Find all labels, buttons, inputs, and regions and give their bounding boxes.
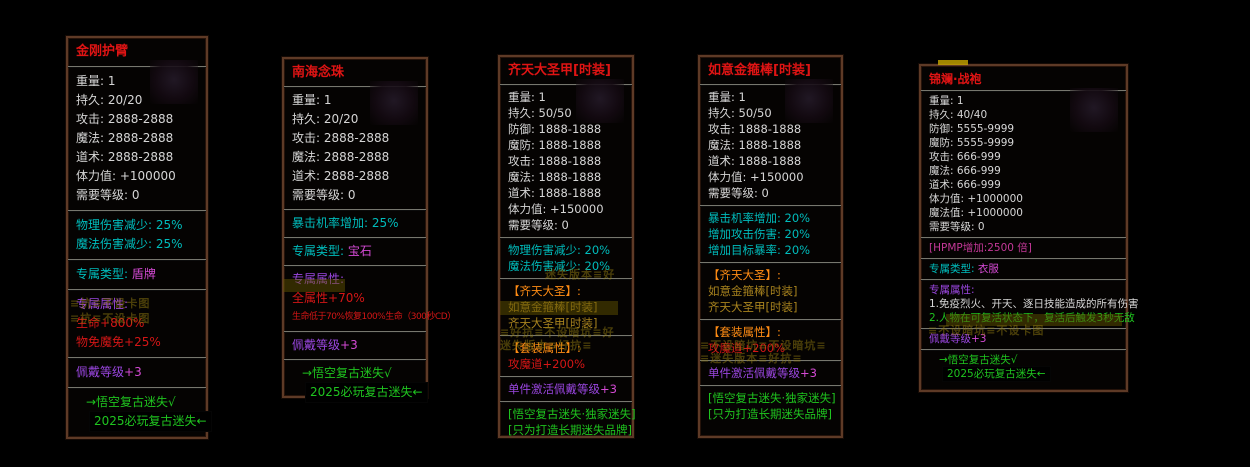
exclusive-type-line: 专属类型: 宝石 — [292, 242, 418, 261]
stats-line: 体力值: +150000 — [708, 169, 833, 185]
stats-line: 魔法值: +1000000 — [929, 206, 1118, 220]
bonuses-line: 物理伤害减少: 20% — [508, 242, 624, 258]
stats-line: 魔法: 1888-1888 — [508, 169, 624, 185]
exclusive-attrs-line: 专属属性: — [929, 283, 1118, 297]
bonuses-section: 物理伤害减少: 25%魔法伤害减少: 25% — [76, 216, 198, 254]
item-tooltip-nanhai-nianzhu: 南海念珠重量: 1持久: 20/20攻击: 2888-2888魔法: 2888-… — [282, 57, 428, 398]
footer-section: →悟空复古迷失√2025必玩复古迷失← — [292, 364, 418, 402]
item-title: 齐天大圣甲[时装] — [508, 62, 624, 80]
stats-line: 重量: 1 — [929, 94, 1118, 108]
text-segment: 持久: 20/20 — [76, 93, 142, 107]
section-divider — [500, 335, 632, 336]
text-segment: 单件激活佩戴等级 — [508, 382, 600, 396]
text-segment: 佩戴等级 — [76, 365, 124, 379]
text-segment: 重量: 1 — [708, 90, 746, 104]
text-segment: 南海念珠 — [292, 65, 344, 80]
section-divider — [921, 349, 1126, 350]
text-segment: 2025必玩复古迷失← — [947, 368, 1046, 380]
stats-section: 重量: 1持久: 50/50防御: 1888-1888魔防: 1888-1888… — [508, 89, 624, 233]
highlight-badge: 2025必玩复古迷失← — [943, 367, 1050, 381]
text-segment: 衣服 — [978, 263, 999, 275]
stats-line: 重量: 1 — [508, 89, 624, 105]
section-divider — [921, 328, 1126, 329]
text-segment: 魔法值: +1000000 — [929, 207, 1023, 219]
exclusive-attrs-line: 全属性+70% — [292, 289, 418, 308]
exclusive-type-section: 专属类型: 盾牌 — [76, 265, 198, 284]
item-tooltip-ruyi-jingubang: 如意金箍棒[时装]重量: 1持久: 50/50攻击: 1888-1888魔法: … — [698, 55, 843, 438]
exclusive-attrs-line: 2.人物在可复活状态下，复活后触发3秒无敌 — [929, 311, 1118, 325]
text-segment: 暴击机率增加: 20% — [708, 211, 810, 225]
text-segment: 持久: 40/40 — [929, 109, 987, 121]
stats-line: 防御: 5555-9999 — [929, 122, 1118, 136]
stats-section: 重量: 1持久: 20/20攻击: 2888-2888魔法: 2888-2888… — [292, 91, 418, 205]
text-segment: 重量: 1 — [292, 93, 332, 107]
text-segment: 如意金箍棒[时装] — [708, 284, 797, 298]
footer-line: →悟空复古迷失√ — [929, 353, 1118, 367]
exclusive-attrs-line: 物免魔免+25% — [76, 333, 198, 352]
exclusive-attrs-line: 生命+800% — [76, 314, 198, 333]
set-items-line: 齐天大圣甲[时装] — [708, 299, 833, 315]
section-divider — [500, 401, 632, 402]
section-divider — [700, 360, 841, 361]
text-segment: 锦斓·战袍 — [929, 72, 982, 86]
item-tooltip-qitiandasheng-jia: 齐天大圣甲[时装]重量: 1持久: 50/50防御: 1888-1888魔防: … — [498, 55, 634, 438]
text-segment: +3 — [340, 338, 358, 352]
text-segment: 全属性 — [292, 291, 328, 305]
stats-line: 重量: 1 — [292, 91, 418, 110]
set-attrs-section: 【套装属性】:攻魔道+200% — [708, 324, 833, 356]
text-segment: 魔防: 1888-1888 — [508, 138, 601, 152]
text-segment: 攻击: 1888-1888 — [508, 154, 601, 168]
text-segment: 2025必玩复古迷失← — [94, 414, 207, 428]
text-segment: 专属类型: — [76, 267, 132, 281]
stats-line: 持久: 50/50 — [508, 105, 624, 121]
section-divider — [921, 279, 1126, 280]
text-segment: [HPMP增加:2500 倍] — [929, 242, 1032, 254]
text-segment: 如意金箍棒[时装] — [708, 63, 811, 78]
stats-section: 重量: 1持久: 40/40防御: 5555-9999魔防: 5555-9999… — [929, 94, 1118, 234]
set-attrs-line: 【套装属性】: — [508, 340, 624, 356]
text-segment: 重量: 1 — [76, 74, 116, 88]
exclusive-type-section: 专属类型: 衣服 — [929, 262, 1118, 276]
text-segment: 持久: 20/20 — [292, 112, 358, 126]
text-segment: 齐天大圣甲[时装] — [708, 300, 797, 314]
text-segment: 重量: 1 — [508, 90, 546, 104]
item-title: 金刚护臂 — [76, 43, 198, 61]
text-segment: 2025必玩复古迷失← — [310, 385, 423, 399]
hpmp-bonus-section: [HPMP增加:2500 倍] — [929, 241, 1118, 255]
stats-line: 攻击: 2888-2888 — [76, 110, 198, 129]
section-divider — [500, 237, 632, 238]
stats-line: 重量: 1 — [76, 72, 198, 91]
header-section: 金刚护臂 — [76, 43, 198, 61]
item-tooltip-jingang-hubi: 金刚护臂重量: 1持久: 20/20攻击: 2888-2888魔法: 2888-… — [66, 36, 208, 439]
text-segment: 物理伤害减少: 20% — [508, 243, 610, 257]
section-divider — [284, 331, 426, 332]
set-items-line: 【齐天大圣】: — [708, 267, 833, 283]
text-segment: 物免魔免 — [76, 335, 124, 349]
stats-line: 魔法: 2888-2888 — [292, 148, 418, 167]
text-segment: 道术: 1888-1888 — [708, 154, 801, 168]
bonuses-line: 魔法伤害减少: 20% — [508, 258, 624, 274]
text-segment: +800% — [100, 316, 144, 330]
text-segment: 盾牌 — [132, 267, 156, 281]
bonuses-line: 增加攻击伤害: 20% — [708, 226, 833, 242]
text-segment: [悟空复古迷失·独家迷失] — [708, 391, 836, 405]
bonuses-line: 增加目标暴率: 20% — [708, 242, 833, 258]
single-activate-line: 单件激活佩戴等级+3 — [708, 365, 833, 381]
footer-line: [悟空复古迷失·独家迷失] — [708, 390, 833, 406]
set-attrs-line: 攻魔道+200% — [708, 340, 833, 356]
exclusive-attrs-section: 专属属性:1.免疫烈火、开天、逐日技能造成的所有伤害2.人物在可复活状态下，复活… — [929, 283, 1118, 325]
text-segment: 攻击: 2888-2888 — [76, 112, 173, 126]
wear-level-line: 佩戴等级+3 — [929, 332, 1118, 346]
section-divider — [700, 205, 841, 206]
set-attrs-section: 【套装属性】:攻魔道+200% — [508, 340, 624, 372]
text-segment: 道术: 2888-2888 — [76, 150, 173, 164]
exclusive-attrs-line: 1.免疫烈火、开天、逐日技能造成的所有伤害 — [929, 297, 1118, 311]
exclusive-type-section: 专属类型: 宝石 — [292, 242, 418, 261]
stats-line: 道术: 2888-2888 — [76, 148, 198, 167]
footer-line: [只为打造长期迷失品牌] — [708, 406, 833, 422]
footer-line: 2025必玩复古迷失← — [929, 367, 1118, 381]
stats-line: 体力值: +100000 — [76, 167, 198, 186]
single-activate-section: 单件激活佩戴等级+3 — [708, 365, 833, 381]
set-attrs-line: 【套装属性】: — [708, 324, 833, 340]
text-segment: →悟空复古迷失√ — [939, 354, 1018, 366]
stats-line: 持久: 20/20 — [292, 110, 418, 129]
text-segment: +3 — [800, 366, 817, 380]
stats-line: 魔法: 2888-2888 — [76, 129, 198, 148]
text-segment: 体力值: +1000000 — [929, 193, 1023, 205]
stats-line: 需要等级: 0 — [929, 220, 1118, 234]
stats-line: 重量: 1 — [708, 89, 833, 105]
stats-line: 魔法: 1888-1888 — [708, 137, 833, 153]
text-segment: 道术: 2888-2888 — [292, 169, 389, 183]
highlight-badge: 2025必玩复古迷失← — [306, 383, 427, 402]
section-divider — [284, 209, 426, 210]
set-items-section: 【齐天大圣】:如意金箍棒[时装]齐天大圣甲[时装] — [708, 267, 833, 315]
exclusive-attrs-section: 专属属性:生命+800%物免魔免+25% — [76, 295, 198, 352]
highlight-badge: 2025必玩复古迷失← — [90, 412, 211, 431]
footer-section: →悟空复古迷失√2025必玩复古迷失← — [929, 353, 1118, 381]
section-divider — [700, 385, 841, 386]
text-segment: 增加目标暴率: 20% — [708, 243, 810, 257]
section-divider — [68, 210, 206, 211]
text-segment: 魔法伤害减少: 25% — [76, 237, 183, 251]
text-segment: 【齐天大圣】: — [508, 284, 581, 298]
text-segment: 攻击: 1888-1888 — [708, 122, 801, 136]
text-segment: +25% — [124, 335, 161, 349]
section-divider — [921, 237, 1126, 238]
wear-level-section: 佩戴等级+3 — [76, 363, 198, 382]
text-segment: 专属属性: — [76, 297, 128, 311]
set-items-line: 齐天大圣甲[时装] — [508, 315, 624, 331]
text-segment: 【套装属性】: — [708, 325, 781, 339]
footer-section: [悟空复古迷失·独家迷失][只为打造长期迷失品牌] — [708, 390, 833, 422]
text-segment: [悟空复古迷失·独家迷失] — [508, 407, 636, 421]
exclusive-attrs-section: 专属属性:全属性+70%生命低于70%恢复100%生命（300秒CD） — [292, 270, 418, 327]
text-segment: 需要等级: 0 — [292, 188, 356, 202]
stats-line: 攻击: 1888-1888 — [508, 153, 624, 169]
text-segment: 1.免疫烈火、开天、逐日技能造成的所有伤害 — [929, 298, 1139, 310]
set-items-line: 如意金箍棒[时装] — [508, 299, 624, 315]
header-section: 齐天大圣甲[时装] — [508, 62, 624, 80]
bonuses-line: 魔法伤害减少: 25% — [76, 235, 198, 254]
bonuses-section: 暴击机率增加: 20%增加攻击伤害: 20%增加目标暴率: 20% — [708, 210, 833, 258]
text-segment: 重量: 1 — [929, 95, 964, 107]
text-segment: 道术: 1888-1888 — [508, 186, 601, 200]
section-divider — [700, 319, 841, 320]
wear-level-line: 佩戴等级+3 — [76, 363, 198, 382]
text-segment: 专属属性: — [292, 272, 344, 286]
wear-level-section: 佩戴等级+3 — [292, 336, 418, 355]
text-segment: 需要等级: 0 — [76, 188, 140, 202]
text-segment: 攻魔道 — [508, 357, 543, 371]
section-divider — [68, 357, 206, 358]
text-segment: +3 — [600, 382, 617, 396]
bonuses-line: 暴击机率增加: 20% — [708, 210, 833, 226]
stats-line: 攻击: 1888-1888 — [708, 121, 833, 137]
item-tooltip-jinlan-zhanpao: 锦斓·战袍重量: 1持久: 40/40防御: 5555-9999魔防: 5555… — [919, 64, 1128, 392]
text-segment: 暴击机率增加: 25% — [292, 216, 399, 230]
text-segment: 齐天大圣甲[时装] — [508, 63, 611, 78]
header-section: 如意金箍棒[时装] — [708, 62, 833, 80]
stats-line: 道术: 1888-1888 — [508, 185, 624, 201]
stats-line: 魔防: 5555-9999 — [929, 136, 1118, 150]
text-segment: 2.人物在可复活状态下，复活后触发3秒无敌 — [929, 312, 1135, 324]
text-segment: 单件激活佩戴等级 — [708, 366, 800, 380]
section-divider — [500, 376, 632, 377]
text-segment: 生命 — [76, 316, 100, 330]
text-segment: 【套装属性】: — [508, 341, 581, 355]
header-section: 南海念珠 — [292, 64, 418, 82]
text-segment: 生命低于70%恢复100%生命（300秒CD） — [292, 312, 456, 322]
section-divider — [68, 289, 206, 290]
text-segment: 魔法: 666-999 — [929, 165, 1001, 177]
stats-section: 重量: 1持久: 20/20攻击: 2888-2888魔法: 2888-2888… — [76, 72, 198, 205]
exclusive-type-line: 专属类型: 衣服 — [929, 262, 1118, 276]
text-segment: →悟空复古迷失√ — [86, 395, 176, 409]
section-divider — [500, 278, 632, 279]
bonuses-line: 物理伤害减少: 25% — [76, 216, 198, 235]
exclusive-attrs-line: 专属属性: — [76, 295, 198, 314]
stats-line: 道术: 666-999 — [929, 178, 1118, 192]
stats-line: 防御: 1888-1888 — [508, 121, 624, 137]
wear-level-section: 佩戴等级+3 — [929, 332, 1118, 346]
text-segment: 专属属性: — [929, 284, 975, 296]
text-segment: 增加攻击伤害: 20% — [708, 227, 810, 241]
section-divider — [921, 258, 1126, 259]
single-activate-section: 单件激活佩戴等级+3 — [508, 381, 624, 397]
footer-line: [只为打造长期迷失品牌] — [508, 422, 624, 438]
footer-line: →悟空复古迷失√ — [76, 393, 198, 412]
text-segment: +70% — [328, 291, 365, 305]
text-segment: 魔防: 5555-9999 — [929, 137, 1014, 149]
stats-line: 道术: 1888-1888 — [708, 153, 833, 169]
bonuses-section: 暴击机率增加: 25% — [292, 214, 418, 233]
section-divider — [700, 262, 841, 263]
footer-section: →悟空复古迷失√2025必玩复古迷失← — [76, 393, 198, 431]
stats-line: 攻击: 2888-2888 — [292, 129, 418, 148]
text-segment: 防御: 1888-1888 — [508, 122, 601, 136]
stats-line: 魔法: 666-999 — [929, 164, 1118, 178]
bonuses-line: 暴击机率增加: 25% — [292, 214, 418, 233]
game-screen: 金刚护臂重量: 1持久: 20/20攻击: 2888-2888魔法: 2888-… — [0, 0, 1250, 467]
text-segment: 需要等级: 0 — [508, 218, 569, 232]
text-segment: [只为打造长期迷失品牌] — [708, 407, 832, 421]
text-segment: 持久: 50/50 — [508, 106, 572, 120]
bonuses-section: 物理伤害减少: 20%魔法伤害减少: 20% — [508, 242, 624, 274]
text-segment: 需要等级: 0 — [929, 221, 985, 233]
set-items-line: 【齐天大圣】: — [508, 283, 624, 299]
text-segment: 体力值: +150000 — [508, 202, 604, 216]
stats-line: 体力值: +150000 — [508, 201, 624, 217]
text-segment: 持久: 50/50 — [708, 106, 772, 120]
wear-level-line: 佩戴等级+3 — [292, 336, 418, 355]
text-segment: 魔法: 1888-1888 — [708, 138, 801, 152]
item-title: 南海念珠 — [292, 64, 418, 82]
stats-line: 攻击: 666-999 — [929, 150, 1118, 164]
set-items-section: 【齐天大圣】:如意金箍棒[时装]齐天大圣甲[时装] — [508, 283, 624, 331]
stats-line: 需要等级: 0 — [292, 186, 418, 205]
footer-line: [悟空复古迷失·独家迷失] — [508, 406, 624, 422]
text-segment: 【齐天大圣】: — [708, 268, 781, 282]
text-segment: 攻击: 666-999 — [929, 151, 1001, 163]
item-title: 如意金箍棒[时装] — [708, 62, 833, 80]
text-segment: 宝石 — [348, 244, 372, 258]
section-divider — [284, 237, 426, 238]
stats-line: 持久: 20/20 — [76, 91, 198, 110]
text-segment: 佩戴等级 — [929, 333, 971, 345]
stats-line: 持久: 50/50 — [708, 105, 833, 121]
header-section: 锦斓·战袍 — [929, 71, 1118, 87]
section-divider — [68, 387, 206, 388]
footer-line: 2025必玩复古迷失← — [292, 383, 418, 402]
text-segment: [只为打造长期迷失品牌] — [508, 423, 632, 437]
stats-section: 重量: 1持久: 50/50攻击: 1888-1888魔法: 1888-1888… — [708, 89, 833, 201]
set-attrs-line: 攻魔道+200% — [508, 356, 624, 372]
stats-line: 道术: 2888-2888 — [292, 167, 418, 186]
text-segment: 体力值: +150000 — [708, 170, 804, 184]
item-title: 锦斓·战袍 — [929, 71, 1118, 87]
set-items-line: 如意金箍棒[时装] — [708, 283, 833, 299]
text-segment: 攻击: 2888-2888 — [292, 131, 389, 145]
exclusive-type-line: 专属类型: 盾牌 — [76, 265, 198, 284]
text-segment: 魔法: 1888-1888 — [508, 170, 601, 184]
text-segment: +200% — [743, 341, 786, 355]
text-segment: 需要等级: 0 — [708, 186, 769, 200]
stats-line: 需要等级: 0 — [508, 217, 624, 233]
text-segment: 金刚护臂 — [76, 44, 128, 59]
text-segment: 防御: 5555-9999 — [929, 123, 1014, 135]
text-segment: 魔法: 2888-2888 — [292, 150, 389, 164]
footer-line: 2025必玩复古迷失← — [76, 412, 198, 431]
exclusive-attrs-line: 生命低于70%恢复100%生命（300秒CD） — [292, 308, 418, 327]
single-activate-line: 单件激活佩戴等级+3 — [508, 381, 624, 397]
footer-section: [悟空复古迷失·独家迷失][只为打造长期迷失品牌] — [508, 406, 624, 438]
text-segment: 体力值: +100000 — [76, 169, 176, 183]
stats-line: 持久: 40/40 — [929, 108, 1118, 122]
text-segment: 道术: 666-999 — [929, 179, 1001, 191]
text-segment: 佩戴等级 — [292, 338, 340, 352]
text-segment: 如意金箍棒[时装] — [508, 300, 597, 314]
text-segment: →悟空复古迷失√ — [302, 366, 392, 380]
text-segment: 物理伤害减少: 25% — [76, 218, 183, 232]
text-segment: 魔法伤害减少: 20% — [508, 259, 610, 273]
text-segment: +3 — [971, 333, 986, 345]
stats-line: 魔防: 1888-1888 — [508, 137, 624, 153]
text-segment: +200% — [543, 357, 586, 371]
stats-line: 需要等级: 0 — [76, 186, 198, 205]
stats-line: 需要等级: 0 — [708, 185, 833, 201]
text-segment: +3 — [124, 365, 142, 379]
text-segment: 专属类型: — [929, 263, 978, 275]
text-segment: 攻魔道 — [708, 341, 743, 355]
section-divider — [284, 359, 426, 360]
section-divider — [284, 265, 426, 266]
exclusive-attrs-line: 专属属性: — [292, 270, 418, 289]
text-segment: 齐天大圣甲[时装] — [508, 316, 597, 330]
text-segment: 魔法: 2888-2888 — [76, 131, 173, 145]
text-segment: 专属类型: — [292, 244, 348, 258]
stats-line: 体力值: +1000000 — [929, 192, 1118, 206]
section-divider — [68, 259, 206, 260]
footer-line: →悟空复古迷失√ — [292, 364, 418, 383]
hpmp-bonus-line: [HPMP增加:2500 倍] — [929, 241, 1118, 255]
